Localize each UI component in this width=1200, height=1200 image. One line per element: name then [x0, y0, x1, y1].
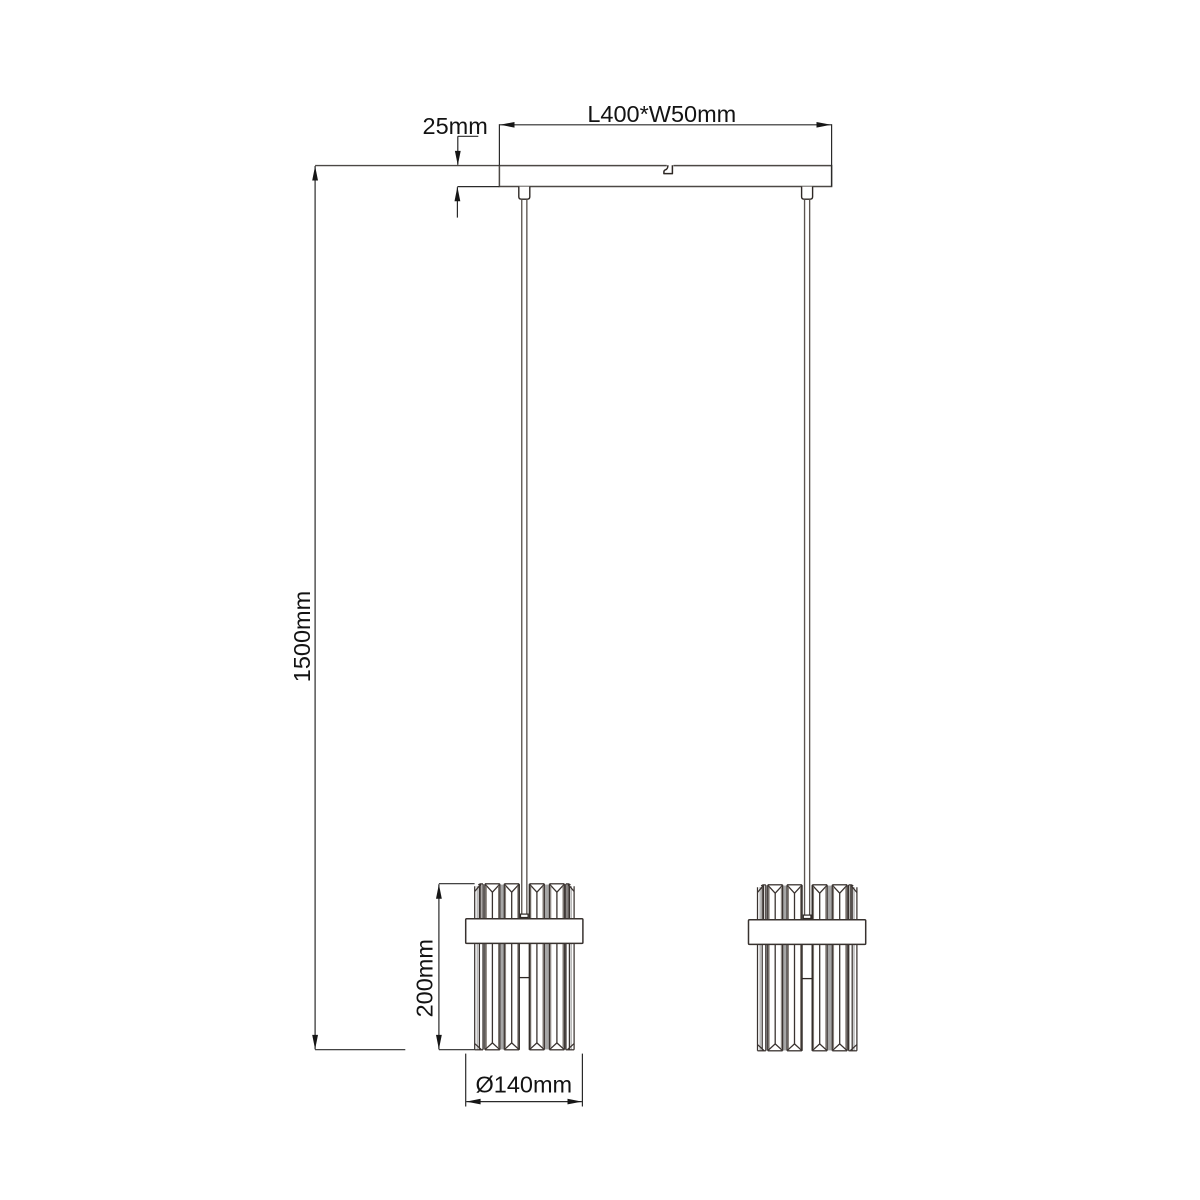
- svg-text:200mm: 200mm: [412, 939, 438, 1017]
- svg-text:L400*W50mm: L400*W50mm: [587, 101, 736, 127]
- svg-text:25mm: 25mm: [423, 113, 488, 139]
- svg-text:1500mm: 1500mm: [289, 591, 315, 682]
- svg-text:Ø140mm: Ø140mm: [475, 1072, 572, 1098]
